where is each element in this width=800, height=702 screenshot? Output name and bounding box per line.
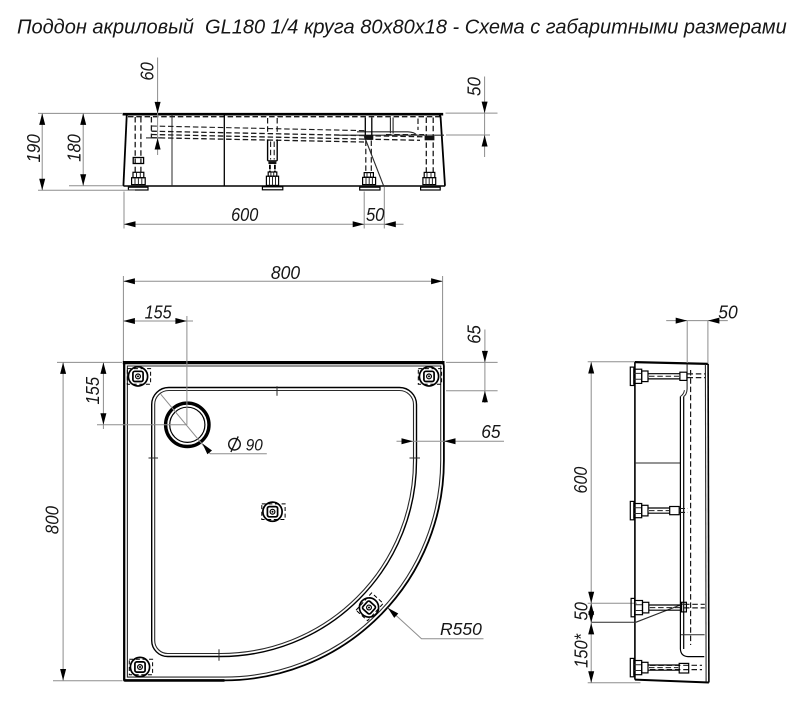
svg-text:60: 60 <box>137 62 157 80</box>
svg-text:R550: R550 <box>440 619 482 639</box>
svg-text:65: 65 <box>481 422 501 442</box>
svg-text:800: 800 <box>43 506 63 534</box>
svg-text:600: 600 <box>571 467 591 494</box>
svg-text:50: 50 <box>465 77 485 96</box>
svg-text:90: 90 <box>246 435 263 454</box>
svg-text:190: 190 <box>24 134 44 162</box>
svg-text:50: 50 <box>366 205 385 225</box>
svg-text:65: 65 <box>465 324 485 344</box>
svg-text:150*: 150* <box>571 633 591 668</box>
svg-text:600: 600 <box>231 205 258 225</box>
svg-text:155: 155 <box>145 303 173 323</box>
svg-text:50: 50 <box>718 302 737 322</box>
svg-text:800: 800 <box>271 263 300 283</box>
svg-text:155: 155 <box>83 376 103 405</box>
svg-text:50: 50 <box>571 602 591 620</box>
svg-text:180: 180 <box>65 134 85 161</box>
svg-text:Поддон акриловый GL180 1/4 кр: Поддон акриловый GL180 1/4 круга 80х80х1… <box>17 17 787 39</box>
